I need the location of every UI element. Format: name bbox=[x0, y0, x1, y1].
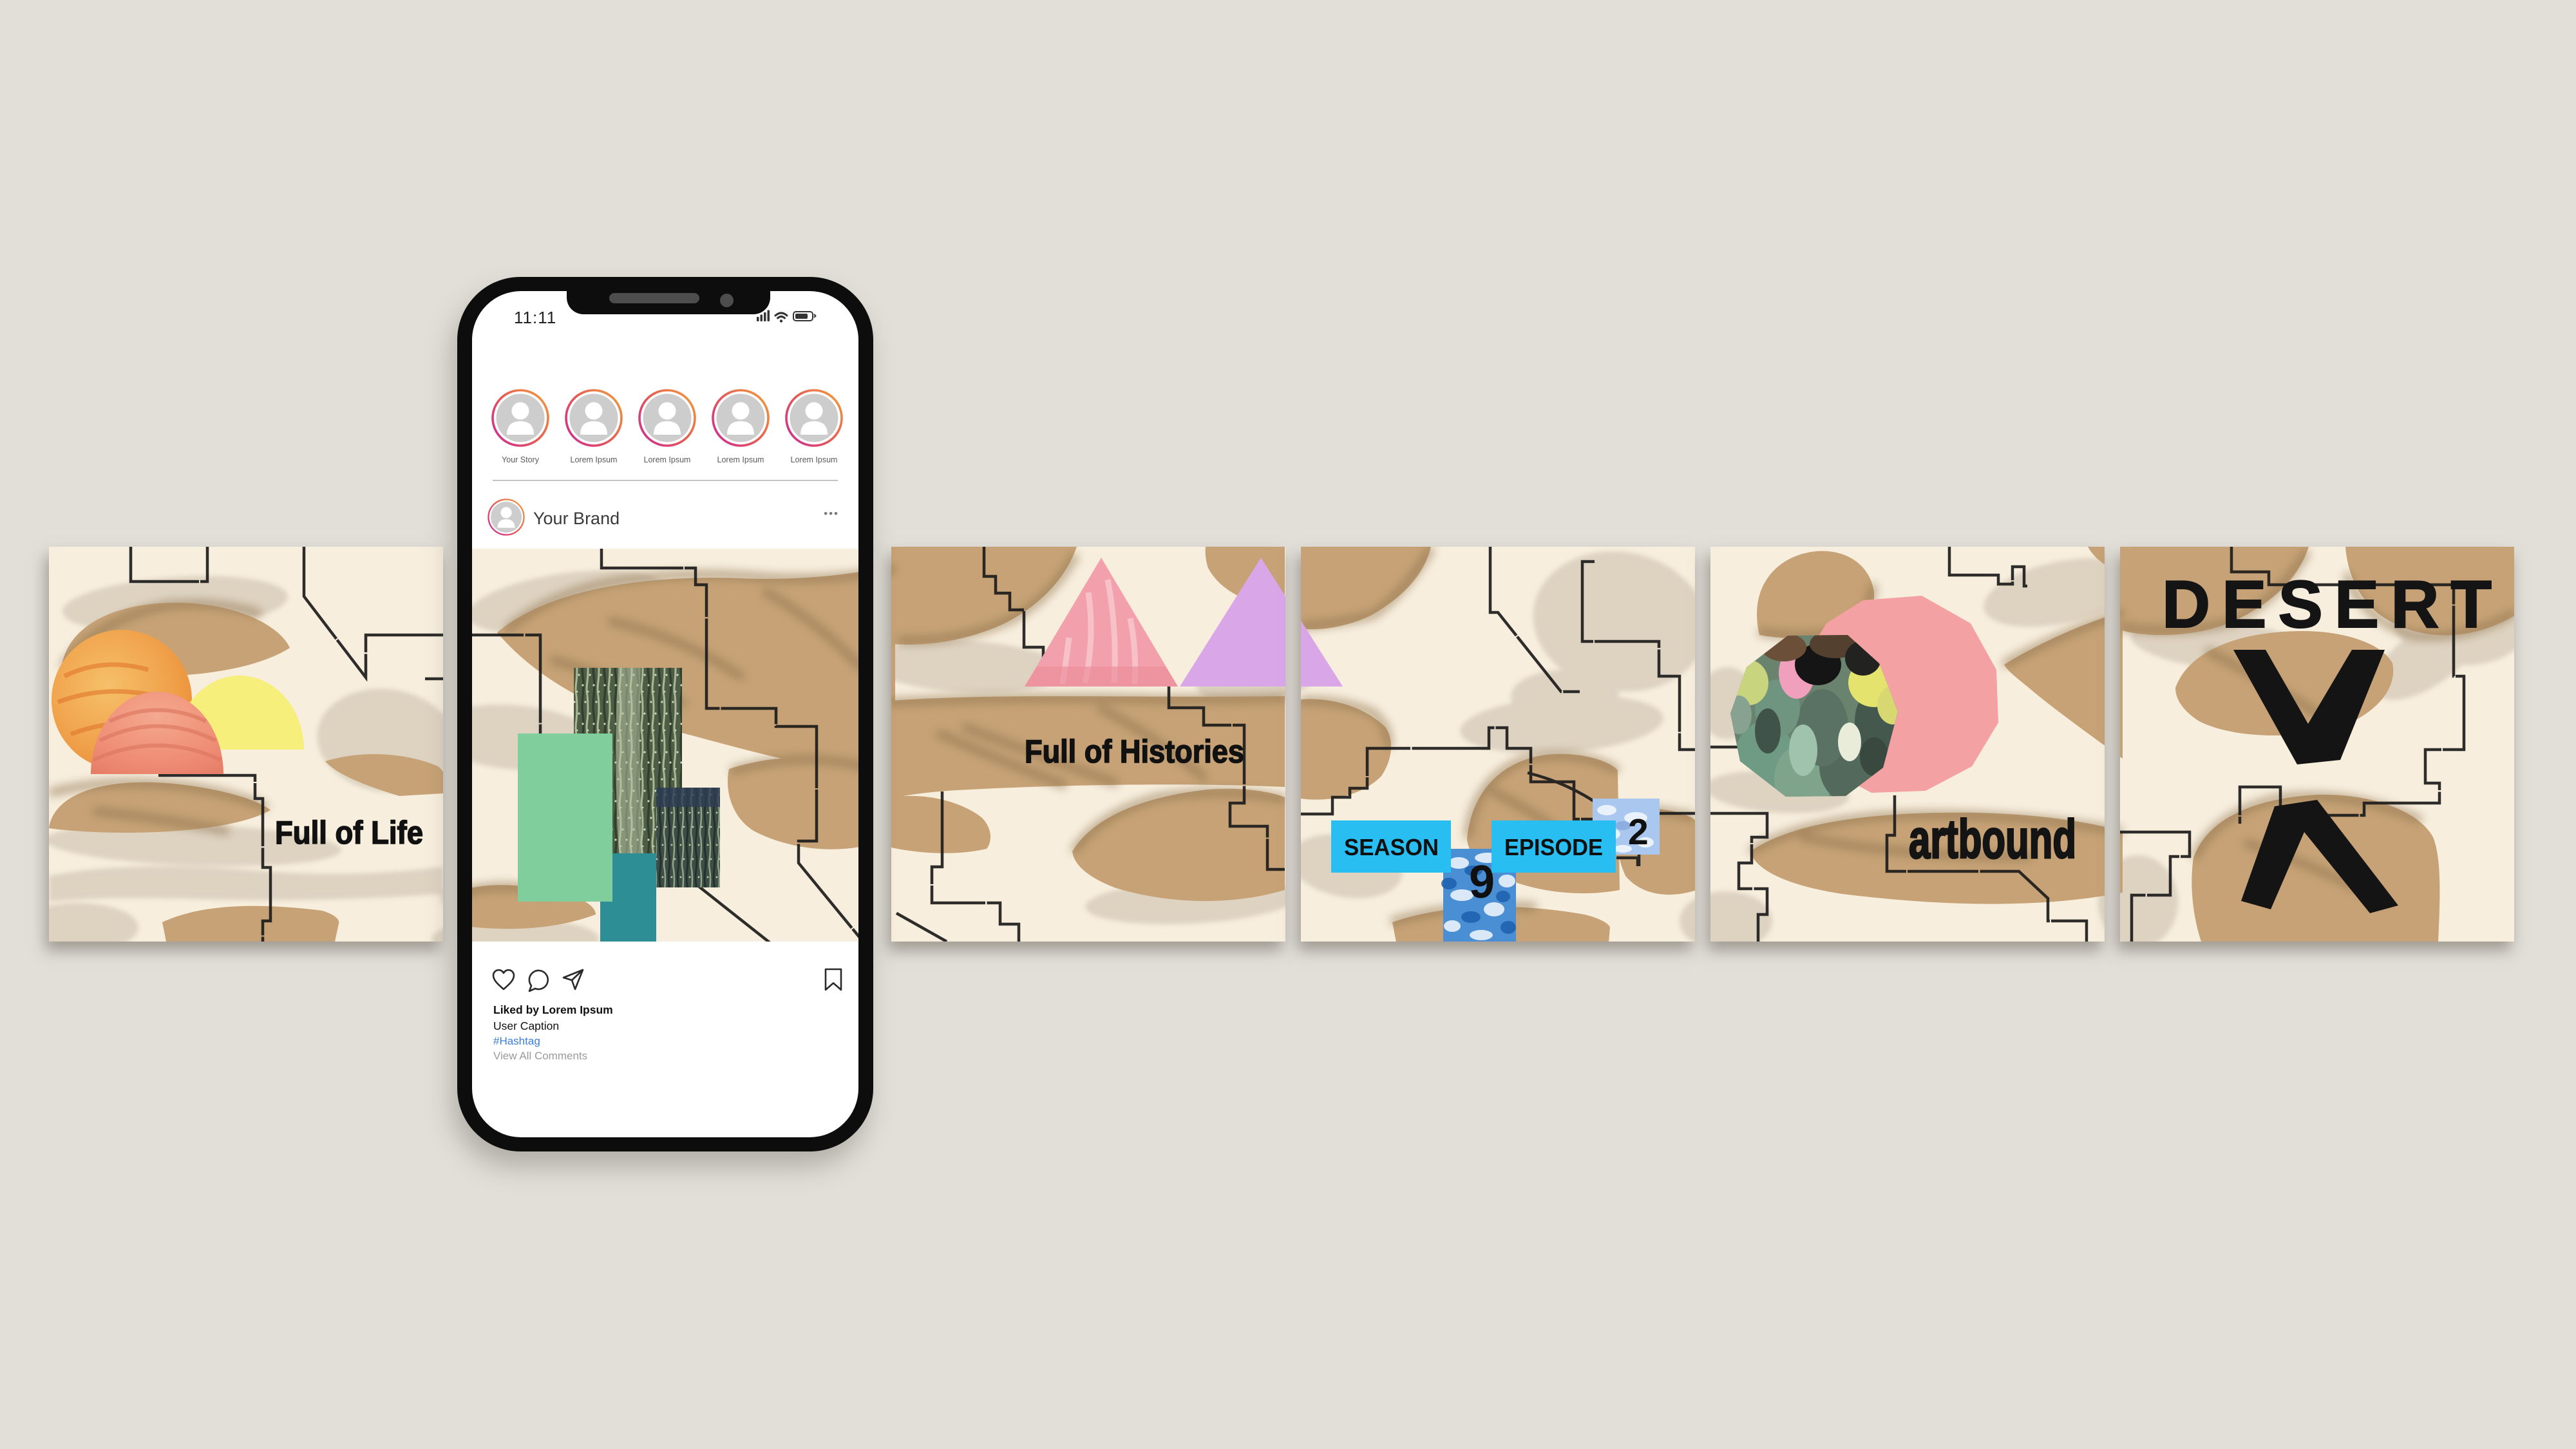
svg-text:Lorem Ipsum: Lorem Ipsum bbox=[644, 455, 691, 464]
svg-text:Lorem Ipsum: Lorem Ipsum bbox=[571, 455, 618, 464]
svg-text:Lorem Ipsum: Lorem Ipsum bbox=[717, 455, 764, 464]
svg-text:Your Story: Your Story bbox=[502, 455, 540, 464]
svg-text:Lorem Ipsum: Lorem Ipsum bbox=[791, 455, 838, 464]
